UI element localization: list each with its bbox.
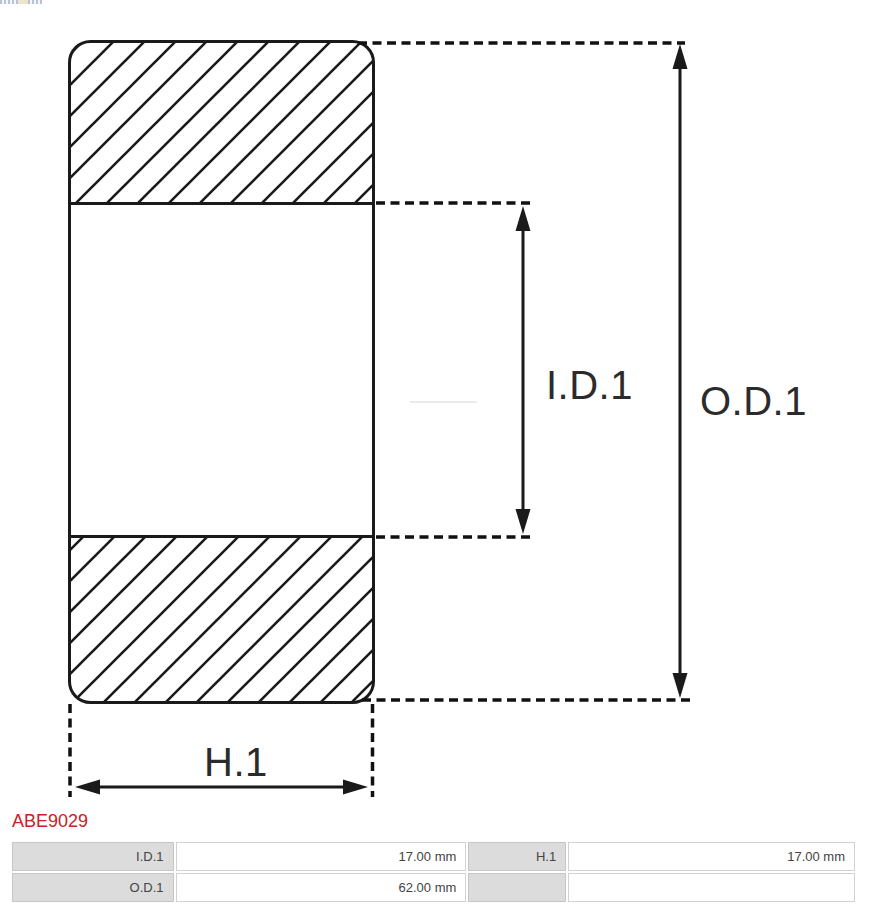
- dim-name-cell: H.1: [468, 842, 566, 871]
- bearing-hatch-sections: [69, 41, 374, 703]
- dim-name-cell: I.D.1: [12, 842, 174, 871]
- dim-value-cell: 17.00 mm: [176, 842, 467, 871]
- bearing-diagram: I.D.1 O.D.1 H.1: [0, 0, 871, 812]
- id1-dimension-arrow: [516, 206, 531, 534]
- od1-dimension-label: O.D.1: [700, 379, 807, 423]
- od1-dimension-arrow: [673, 44, 688, 698]
- product-drawing-page: I.D.1 O.D.1 H.1 ABE9029 I.D.1 17.00 mm H…: [0, 0, 871, 913]
- table-row: O.D.1 62.00 mm: [12, 873, 855, 902]
- dim-value-cell: 62.00 mm: [176, 873, 467, 902]
- h1-dimension-label: H.1: [204, 740, 268, 784]
- dim-value-cell: [568, 873, 855, 902]
- dim-name-cell: [468, 873, 566, 902]
- product-code-link[interactable]: ABE9029: [12, 811, 88, 832]
- dimensions-table: I.D.1 17.00 mm H.1 17.00 mm O.D.1 62.00 …: [10, 840, 857, 904]
- table-row: I.D.1 17.00 mm H.1 17.00 mm: [12, 842, 855, 871]
- dim-name-cell: O.D.1: [12, 873, 174, 902]
- id1-dimension-label: I.D.1: [546, 363, 633, 407]
- dim-value-cell: 17.00 mm: [568, 842, 855, 871]
